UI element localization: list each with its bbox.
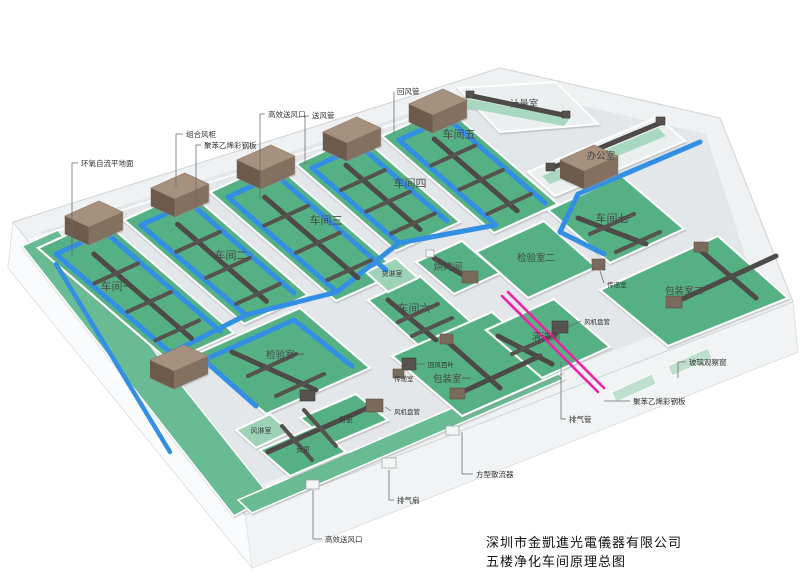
return-louver-box (402, 358, 416, 370)
room-label-women-change: 女更 (296, 445, 310, 454)
annotation-epoxy-floor: 环氧自流平地面 (81, 158, 134, 168)
annotation-fan-coil2: 风机盘管 (584, 317, 611, 326)
duct-end-box (466, 91, 474, 98)
company-title: 深圳市金凱進光電儀器有限公司 (486, 535, 682, 550)
pass-through-box (592, 259, 605, 270)
annotation-panel-right: 聚苯乙烯彩钢板 (633, 396, 686, 406)
room-label-inspection1: 检验室一 (266, 349, 305, 361)
annotation-exhaust-pipe: 排气管 (569, 414, 592, 424)
drawing-subtitle: 五楼净化车间原理总图 (486, 554, 626, 569)
duct-end-box (694, 242, 708, 252)
baking-box (426, 250, 434, 257)
duct-end-box (562, 111, 570, 118)
room-label-cargo-shower: 货淋室 (382, 269, 403, 278)
hepa-outlet-box (306, 480, 319, 489)
room-label-baking: 烘烤间 (434, 261, 463, 273)
annotation-return-louver: 回风百叶 (428, 360, 455, 369)
room-label-pass-through2: 传递室 (607, 280, 627, 289)
baking-oven-box (462, 271, 478, 283)
annotation-hepa-top: 高效送风口 (268, 109, 306, 119)
annotation-ahu: 组合风柜 (186, 129, 216, 139)
annotation-panel-top: 聚苯乙烯彩钢板 (204, 140, 257, 150)
cleanroom-isometric-diagram: 车间一 车间二 车间三 车间四 车间五 车间六 车间七 办公室 计量室 检验室一… (0, 0, 800, 587)
room-label-workshop6: 车间六 (398, 301, 431, 315)
room-label-workshop2: 车间二 (215, 248, 248, 262)
floorplan-canvas: 车间一 车间二 车间三 车间四 车间五 车间六 车间七 办公室 计量室 检验室一… (0, 0, 800, 587)
duct-riser-box (300, 390, 315, 401)
room-label-workshop3: 车间三 (310, 213, 343, 227)
exhaust-fan-box (382, 458, 396, 468)
room-label-packing2: 包装室二 (665, 285, 703, 297)
room-label-workshop7: 车间七 (596, 211, 629, 225)
duct-end-box (450, 388, 465, 399)
fan-coil-box (366, 399, 383, 412)
room-label-packing1: 包装室一 (433, 373, 472, 385)
duct-end-box (666, 296, 682, 308)
duct-end-box (656, 117, 665, 125)
annotation-return-duct: 回风管 (397, 86, 420, 96)
room-label-pass-through1: 传递室 (394, 374, 414, 383)
annotation-hepa-bottom: 高效送风口 (325, 534, 363, 544)
room-label-metrology: 计量室 (510, 98, 539, 110)
title-block: 深圳市金凱進光電儀器有限公司 五楼净化车间原理总图 (486, 535, 682, 569)
annotation-square-diffuser: 方型散流器 (476, 469, 514, 479)
room-label-air-shower: 风淋室 (251, 426, 272, 435)
room-label-office: 办公室 (587, 150, 616, 162)
duct-end-box (546, 163, 555, 171)
annotation-fan-coil1: 风机盘管 (394, 407, 421, 416)
room-label-workshop5: 车间五 (443, 127, 476, 141)
square-diffuser (446, 426, 459, 435)
room-label-workshop1: 车间一 (101, 279, 134, 293)
room-label-workshop4: 车间四 (394, 176, 427, 190)
annotation-glass-window: 玻璃观察窗 (689, 357, 727, 367)
room-label-washing: 清洗间 (532, 331, 561, 343)
duct-end-box (440, 334, 453, 344)
room-label-men-change: 男更 (339, 416, 353, 424)
annotation-exhaust-fan: 排气扇 (397, 495, 420, 505)
room-label-inspection2: 检验室二 (517, 252, 555, 264)
annotation-supply-duct: 送风管 (312, 110, 335, 120)
